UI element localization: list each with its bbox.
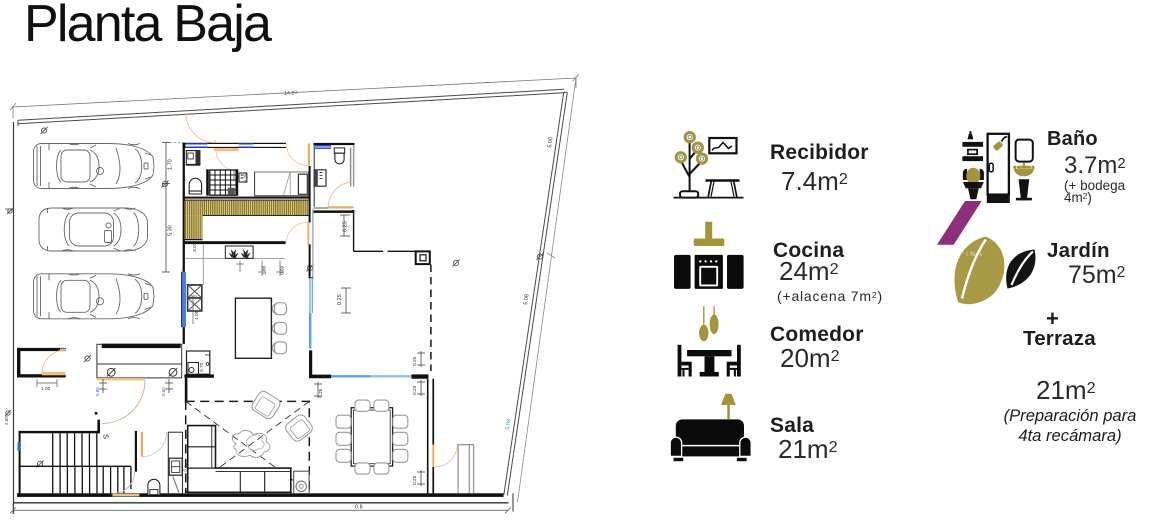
svg-text:0.60: 0.60: [280, 265, 286, 275]
svg-text:2.60: 2.60: [4, 416, 9, 425]
svg-text:0.25: 0.25: [343, 221, 349, 232]
svg-text:0.25: 0.25: [412, 475, 418, 485]
svg-text:0.8: 0.8: [355, 505, 363, 511]
svg-text:0.25: 0.25: [412, 356, 418, 366]
svg-text:5.08: 5.08: [505, 419, 512, 430]
svg-text:5.00: 5.00: [547, 137, 554, 148]
svg-text:1.70: 1.70: [168, 159, 174, 170]
svg-text:S: S: [102, 434, 111, 439]
svg-text:0.80: 0.80: [95, 387, 100, 396]
svg-text:0.25: 0.25: [337, 294, 343, 305]
svg-text:5.30: 5.30: [168, 225, 174, 236]
svg-text:0.25: 0.25: [244, 173, 250, 183]
svg-text:INA: INA: [966, 251, 984, 258]
svg-text:3.01: 3.01: [192, 242, 198, 252]
svg-text:0.70: 0.70: [199, 362, 205, 372]
svg-text:0.80: 0.80: [161, 387, 166, 396]
svg-text:1.80: 1.80: [262, 265, 268, 275]
svg-text:5.08: 5.08: [523, 294, 530, 305]
svg-text:1.00: 1.00: [41, 386, 51, 392]
svg-text:14.87: 14.87: [284, 90, 298, 97]
svg-text:1.05: 1.05: [194, 310, 200, 320]
svg-text:0.25: 0.25: [318, 388, 324, 398]
svg-text:0.25: 0.25: [412, 385, 418, 395]
